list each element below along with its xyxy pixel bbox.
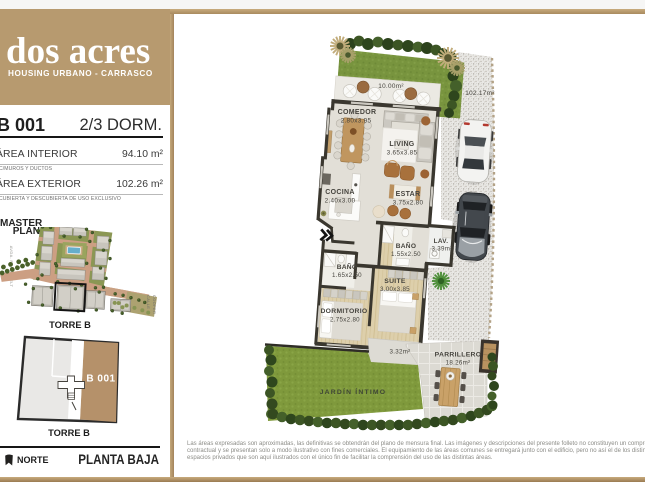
svg-text:1.65x2.50: 1.65x2.50 <box>332 272 362 279</box>
svg-text:3.39m²: 3.39m² <box>431 246 452 253</box>
svg-text:PARRILLERO: PARRILLERO <box>435 352 482 359</box>
svg-text:2.75x2.80: 2.75x2.80 <box>330 317 360 324</box>
svg-text:LIVING: LIVING <box>389 141 414 148</box>
svg-text:10.00m²: 10.00m² <box>378 83 404 90</box>
svg-text:BAÑO: BAÑO <box>337 262 358 271</box>
svg-text:102.17m²: 102.17m² <box>465 90 494 97</box>
svg-text:3.00x3.85: 3.00x3.85 <box>380 286 410 293</box>
svg-text:COMEDOR: COMEDOR <box>338 109 377 116</box>
svg-text:3.32m²: 3.32m² <box>389 349 410 356</box>
svg-text:DORMITORIO: DORMITORIO <box>320 308 367 315</box>
svg-text:1.55x2.50: 1.55x2.50 <box>391 251 421 258</box>
svg-text:3.75x2.80: 3.75x2.80 <box>393 200 424 207</box>
svg-text:18.26m²: 18.26m² <box>446 360 471 367</box>
svg-text:3.65x3.85: 3.65x3.85 <box>387 150 418 157</box>
svg-text:JARDÍN ÍNTIMO: JARDÍN ÍNTIMO <box>320 387 387 396</box>
svg-text:COCINA: COCINA <box>325 189 354 196</box>
svg-text:SUITE: SUITE <box>384 278 406 285</box>
svg-text:LAV.: LAV. <box>434 238 449 245</box>
svg-text:2.40x3.00: 2.40x3.00 <box>325 198 356 205</box>
svg-text:ESTAR: ESTAR <box>396 191 421 198</box>
svg-text:2.80x3.95: 2.80x3.95 <box>341 118 372 125</box>
svg-text:BAÑO: BAÑO <box>396 241 417 250</box>
